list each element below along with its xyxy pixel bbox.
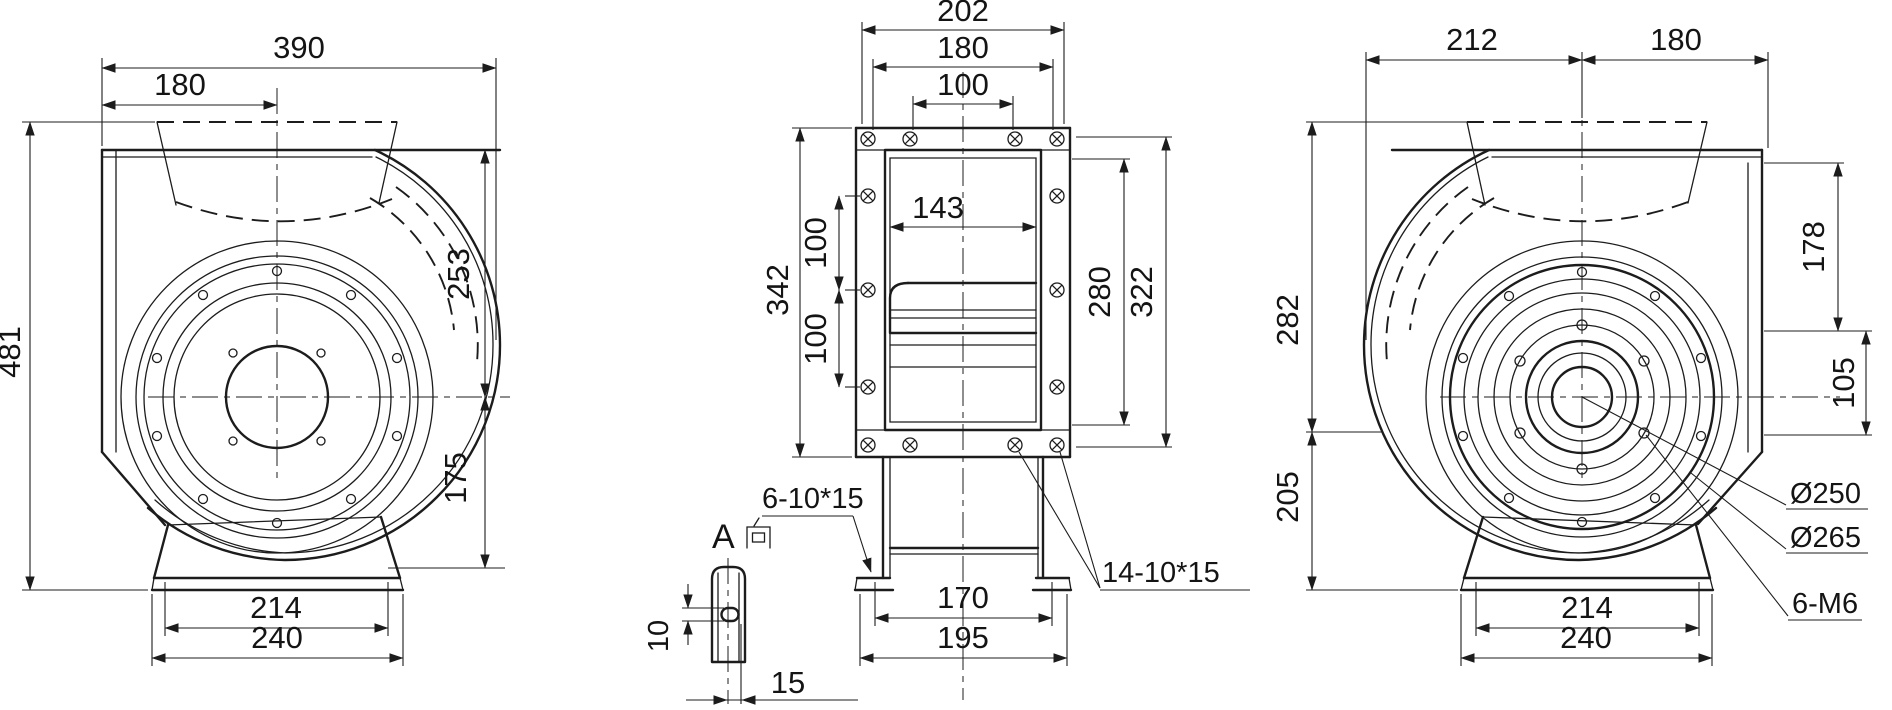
dim-left-axis-to-bottom: 175 — [438, 452, 473, 504]
note-ring-dia: Ø265 — [1790, 522, 1861, 554]
note-bolt-spec: 6-M6 — [1792, 588, 1858, 620]
dim-left-overall-height: 481 — [0, 326, 27, 378]
right-side-view: 212 180 282 205 178 105 Ø250 — [1270, 22, 1872, 666]
technical-drawing-canvas: 390 180 481 253 175 214 240 — [0, 0, 1892, 710]
xiang-direction-icon — [747, 518, 770, 548]
dim-front-side-pitch-upper: 100 — [798, 217, 833, 269]
note-foot-slots: 6-10*15 — [762, 483, 864, 515]
dim-front-side-bolt-span: 280 — [1082, 266, 1117, 318]
note-bolt-circle-dia: Ø250 — [1790, 478, 1861, 510]
dim-right-inlet-height: 178 — [1796, 221, 1831, 273]
dim-front-foot-slot-span: 170 — [937, 580, 989, 615]
dim-right-axis-to-right: 180 — [1650, 22, 1702, 57]
note-flange-slots: 14-10*15 — [1102, 557, 1220, 589]
dim-left-center-offset: 180 — [154, 67, 206, 102]
dim-front-flange-span: 322 — [1124, 266, 1159, 318]
right-view-dimensions: 212 180 282 205 178 105 Ø250 — [1270, 22, 1872, 666]
foot-bracket-section — [712, 558, 745, 704]
dim-right-step-height: 105 — [1826, 357, 1861, 409]
detail-a-dimensions: 10 15 — [643, 584, 858, 704]
dim-right-base-bottom: 240 — [1560, 620, 1612, 655]
dim-front-foot-width: 195 — [937, 620, 989, 655]
dim-left-overall-width: 390 — [273, 30, 325, 65]
detail-a-view: A 10 15 — [643, 518, 858, 704]
dim-right-axis-to-left: 212 — [1446, 22, 1498, 57]
right-view-inlet-circles — [1426, 88, 1840, 553]
dim-front-housing-width: 143 — [912, 190, 964, 225]
dim-right-axis-to-base: 205 — [1270, 471, 1305, 523]
detail-a-letter: A — [712, 518, 735, 556]
dim-front-flange-width: 202 — [937, 0, 989, 28]
drawing-sheet: 390 180 481 253 175 214 240 — [0, 0, 1892, 710]
dim-front-overall-height: 342 — [760, 264, 795, 316]
dim-detail-slot-width: 15 — [771, 665, 805, 700]
left-side-view: 390 180 481 253 175 214 240 — [0, 30, 510, 666]
dim-front-bolt-pitch: 100 — [937, 67, 989, 102]
dim-detail-slot-height: 10 — [643, 620, 675, 652]
dim-left-base-bottom: 240 — [251, 620, 303, 655]
front-view: 202 180 100 143 342 100 — [760, 0, 1250, 700]
dim-front-bolt-span: 180 — [937, 30, 989, 65]
left-view-dimensions: 390 180 481 253 175 214 240 — [0, 30, 505, 666]
dim-right-top-to-axis: 282 — [1270, 294, 1305, 346]
dim-left-top-to-axis: 253 — [441, 248, 476, 300]
dim-front-side-pitch-lower: 100 — [798, 313, 833, 365]
